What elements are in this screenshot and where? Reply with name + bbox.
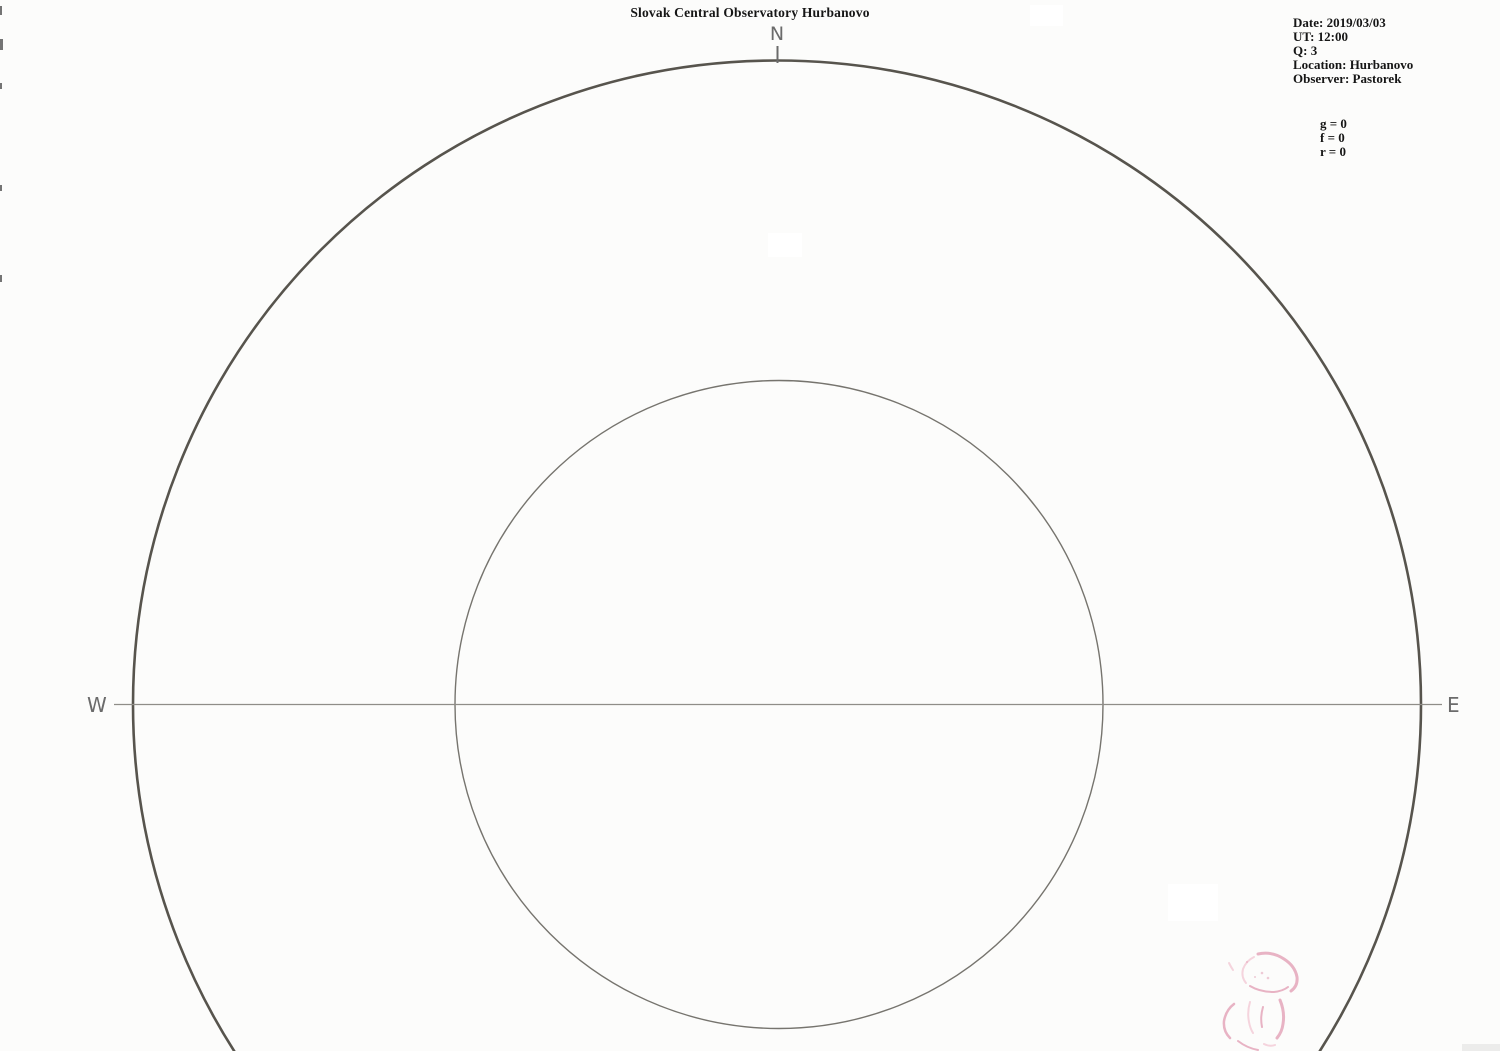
spots-count-line: f = 0 <box>1320 131 1347 145</box>
compass-east-label: E <box>1447 695 1460 715</box>
observer-line: Observer: Pastorek <box>1293 72 1413 86</box>
pink-stamp-mark <box>1224 953 1297 1050</box>
scan-corner-smudge <box>1462 1044 1500 1051</box>
relative-number-line: r = 0 <box>1320 145 1347 159</box>
groups-count-line: g = 0 <box>1320 117 1347 131</box>
ut-line: UT: 12:00 <box>1293 30 1413 44</box>
scan-edge-speck <box>0 275 2 282</box>
solar-observation-sheet: Slovak Central Observatory Hurbanovo N W… <box>0 0 1500 1051</box>
date-line: Date: 2019/03/03 <box>1293 16 1413 30</box>
observation-info: Date: 2019/03/03 UT: 12:00 Q: 3 Location… <box>1293 16 1413 86</box>
compass-west-label: W <box>87 695 107 715</box>
scan-edge-speck <box>0 39 3 50</box>
scan-edge-speck <box>0 83 2 89</box>
scan-edge-speck <box>0 6 2 15</box>
solar-disk-drawing <box>0 0 1500 1051</box>
scan-edge-speck <box>0 185 2 191</box>
scan-white-patch <box>768 233 802 257</box>
scan-white-patch <box>1030 5 1063 26</box>
location-line: Location: Hurbanovo <box>1293 58 1413 72</box>
solar-disk-outline <box>133 61 1421 1051</box>
quality-line: Q: 3 <box>1293 44 1413 58</box>
page-title: Slovak Central Observatory Hurbanovo <box>0 5 1500 21</box>
compass-north-label: N <box>770 25 784 44</box>
sunspot-counts: g = 0 f = 0 r = 0 <box>1320 117 1347 159</box>
scan-white-patch <box>1168 884 1218 921</box>
